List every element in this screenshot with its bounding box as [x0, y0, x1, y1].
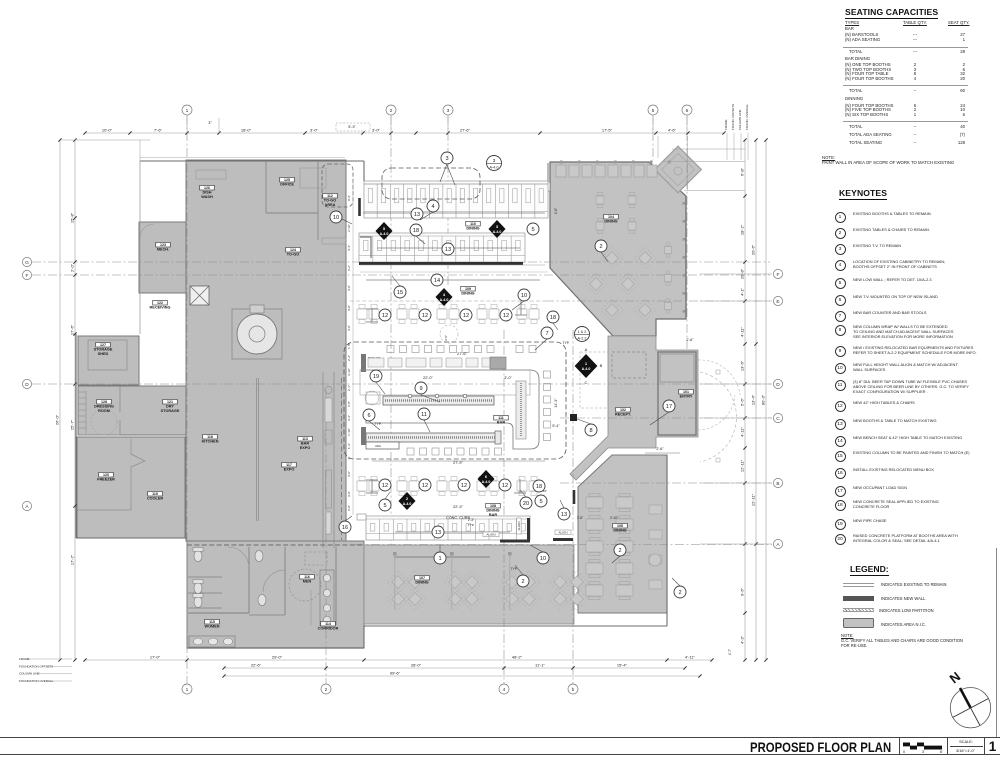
- svg-text:20: 20: [523, 501, 529, 507]
- svg-text:11: 11: [421, 412, 427, 418]
- svg-text:DINING: DINING: [613, 529, 626, 533]
- svg-text:2: 2: [678, 590, 681, 596]
- svg-text:13: 13: [445, 247, 451, 253]
- svg-text:5: 5: [531, 227, 534, 233]
- svg-text:DINING: DINING: [604, 220, 617, 224]
- svg-text:9: 9: [419, 386, 422, 392]
- svg-text:113: 113: [302, 437, 308, 441]
- svg-text:2: 2: [325, 687, 328, 693]
- svg-text:EXPO: EXPO: [300, 446, 311, 450]
- svg-text:19: 19: [373, 374, 379, 380]
- svg-text:7'-6": 7'-6": [154, 127, 163, 132]
- svg-text:4'-6": 4'-6": [554, 208, 558, 214]
- svg-text:111: 111: [498, 416, 504, 420]
- svg-text:17'-0": 17'-0": [150, 654, 161, 659]
- svg-text:10": 10": [543, 489, 547, 493]
- svg-text:4'-0": 4'-0": [347, 305, 351, 311]
- svg-text:FOUND. OVERALL: FOUND. OVERALL: [745, 103, 749, 130]
- svg-text:3'-0": 3'-0": [444, 335, 448, 341]
- svg-text:13: 13: [435, 530, 441, 536]
- svg-text:48'-2": 48'-2": [512, 654, 523, 659]
- svg-text:4: 4: [431, 204, 434, 210]
- svg-text:FRAME: FRAME: [724, 120, 728, 131]
- svg-text:2: 2: [521, 579, 524, 585]
- svg-text:C: C: [776, 416, 780, 422]
- svg-text:26'-0": 26'-0": [54, 414, 59, 425]
- svg-text:12'-11": 12'-11": [750, 493, 755, 506]
- svg-text:12: 12: [463, 313, 469, 319]
- svg-text:10'-0": 10'-0": [102, 127, 113, 132]
- svg-text:TO-GO: TO-GO: [287, 253, 299, 257]
- svg-text:A-4.0: A-4.0: [380, 232, 389, 236]
- svg-text:118: 118: [207, 435, 213, 439]
- svg-text:1'-5": 1'-5": [347, 343, 351, 349]
- svg-text:105: 105: [617, 524, 623, 528]
- svg-text:2'-10": 2'-10": [610, 516, 618, 520]
- svg-text:EXPO: EXPO: [284, 468, 295, 472]
- svg-text:13: 13: [561, 512, 567, 518]
- svg-text:TO-GO: TO-GO: [324, 199, 336, 203]
- svg-text:3'-0": 3'-0": [347, 325, 351, 331]
- svg-text:STORAGE: STORAGE: [161, 409, 180, 413]
- svg-text:17: 17: [666, 404, 672, 410]
- svg-text:126: 126: [204, 186, 210, 190]
- svg-text:114: 114: [325, 622, 331, 626]
- svg-text:13: 13: [414, 212, 420, 218]
- svg-text:2: 2: [618, 548, 621, 554]
- svg-text:5'-3": 5'-3": [348, 125, 356, 129]
- svg-text:2: 2: [599, 244, 602, 250]
- svg-text:5: 5: [383, 503, 386, 509]
- svg-text:DINING: DINING: [486, 509, 499, 513]
- svg-text:13'-4": 13'-4": [750, 394, 755, 405]
- svg-text:122: 122: [157, 301, 163, 305]
- svg-text:123: 123: [160, 243, 166, 247]
- svg-text:4'-1": 4'-1": [739, 287, 744, 296]
- svg-text:22'-6": 22'-6": [251, 662, 262, 667]
- svg-text:15: 15: [397, 290, 403, 296]
- svg-text:80'-3": 80'-3": [760, 394, 765, 405]
- svg-text:2: 2: [390, 108, 393, 114]
- svg-text:7: 7: [545, 331, 548, 337]
- svg-text:116: 116: [304, 575, 310, 579]
- svg-text:ADA: ADA: [375, 444, 381, 448]
- svg-text:18: 18: [550, 315, 556, 321]
- svg-text:DISH: DISH: [202, 191, 211, 195]
- svg-text:D: D: [25, 382, 29, 388]
- svg-text:101: 101: [683, 390, 689, 394]
- svg-text:2'-4": 2'-4": [347, 355, 351, 361]
- svg-text:BAR: BAR: [489, 513, 497, 517]
- svg-text:BAR: BAR: [301, 442, 309, 446]
- svg-text:5: 5: [652, 108, 655, 114]
- svg-text:B: B: [776, 481, 779, 487]
- svg-text:10: 10: [333, 215, 339, 221]
- svg-text:4'-11": 4'-11": [685, 654, 695, 659]
- svg-text:WASH: WASH: [201, 195, 213, 199]
- svg-text:4: 4: [503, 687, 506, 693]
- svg-text:12: 12: [422, 313, 428, 319]
- svg-text:ALIGN: ALIGN: [558, 531, 567, 535]
- svg-text:CORRIDOR: CORRIDOR: [318, 627, 339, 631]
- svg-text:B: B: [600, 363, 603, 368]
- svg-text:18: 18: [413, 228, 419, 234]
- svg-text:117: 117: [286, 463, 292, 467]
- svg-text:4'-7": 4'-7": [728, 649, 732, 655]
- svg-text:2'-6": 2'-6": [656, 447, 664, 451]
- svg-text:9'-6": 9'-6": [739, 587, 744, 596]
- svg-text:108: 108: [490, 504, 496, 508]
- svg-text:16: 16: [342, 525, 348, 531]
- svg-text:OFFICE: OFFICE: [280, 183, 294, 187]
- svg-text:2'-10": 2'-10": [347, 224, 351, 232]
- svg-text:E: E: [776, 299, 779, 305]
- svg-text:3'-2": 3'-2": [347, 265, 351, 271]
- svg-text:COLUMN LINE: COLUMN LINE: [738, 109, 742, 130]
- svg-text:G: G: [25, 260, 29, 266]
- svg-text:TYP.: TYP.: [468, 523, 474, 527]
- svg-text:3': 3': [922, 750, 925, 754]
- svg-text:3'-6": 3'-6": [577, 516, 583, 520]
- svg-text:DRESSING: DRESSING: [94, 405, 114, 409]
- svg-text:9'-6": 9'-6": [347, 195, 351, 201]
- svg-text:A-4.0: A-4.0: [482, 480, 491, 484]
- svg-text:20'-6": 20'-6": [750, 244, 755, 255]
- svg-text:112: 112: [327, 194, 333, 198]
- svg-text:102: 102: [620, 408, 626, 412]
- svg-text:3'-0": 3'-0": [347, 285, 351, 291]
- svg-text:5: 5: [539, 499, 542, 505]
- svg-text:27'-6": 27'-6": [457, 352, 467, 356]
- svg-text:1 & 2: 1 & 2: [578, 330, 586, 334]
- svg-text:F: F: [26, 273, 29, 279]
- svg-text:3'-10": 3'-10": [347, 368, 351, 376]
- svg-text:29'-0": 29'-0": [272, 654, 283, 659]
- svg-text:BAR: BAR: [497, 421, 505, 425]
- svg-text:F: F: [777, 272, 780, 278]
- svg-text:110: 110: [470, 222, 476, 226]
- svg-text:8: 8: [589, 428, 592, 434]
- svg-text:0: 0: [903, 750, 905, 754]
- svg-text:121: 121: [167, 400, 173, 404]
- svg-text:STORAGE: STORAGE: [94, 348, 113, 352]
- svg-text:28'-0": 28'-0": [411, 662, 422, 667]
- svg-text:14: 14: [434, 278, 440, 284]
- svg-text:3: 3: [493, 158, 496, 163]
- svg-text:TYP.: TYP.: [563, 341, 570, 345]
- svg-text:25'-7": 25'-7": [69, 419, 74, 430]
- svg-text:12: 12: [503, 313, 509, 319]
- svg-text:FREEZER: FREEZER: [97, 478, 115, 482]
- svg-text:14'-3": 14'-3": [554, 398, 558, 408]
- svg-text:99'-6": 99'-6": [390, 670, 401, 675]
- svg-text:4'-0": 4'-0": [347, 471, 351, 477]
- svg-text:5'-6": 5'-6": [739, 397, 744, 406]
- svg-text:4'-11": 4'-11": [739, 426, 744, 436]
- svg-text:109: 109: [465, 287, 471, 291]
- svg-text:A-4.0: A-4.0: [403, 502, 412, 506]
- svg-text:DINING: DINING: [466, 227, 479, 231]
- svg-text:12: 12: [502, 483, 508, 489]
- svg-text:10: 10: [521, 293, 527, 299]
- svg-text:3'-4": 3'-4": [347, 415, 351, 421]
- svg-text:3: 3: [445, 156, 448, 162]
- svg-text:1'-10": 1'-10": [347, 428, 351, 436]
- svg-text:3": 3": [208, 121, 212, 125]
- svg-text:A-4.0: A-4.0: [582, 367, 591, 371]
- svg-text:2'-3": 2'-3": [468, 518, 474, 522]
- svg-text:120: 120: [103, 473, 109, 477]
- svg-text:11'-1": 11'-1": [535, 662, 545, 667]
- svg-text:A-4.0: A-4.0: [489, 166, 498, 170]
- svg-text:b: b: [572, 687, 575, 693]
- svg-text:MEN: MEN: [303, 580, 312, 584]
- svg-text:MECH.: MECH.: [157, 248, 169, 252]
- svg-text:125: 125: [284, 178, 290, 182]
- svg-text:22'-0": 22'-0": [423, 376, 433, 380]
- svg-text:D: D: [776, 382, 780, 388]
- svg-text:127: 127: [100, 343, 106, 347]
- svg-text:2'-6": 2'-6": [686, 338, 694, 342]
- svg-text:3'-0": 3'-0": [347, 491, 351, 497]
- svg-text:18'-0": 18'-0": [241, 127, 252, 132]
- svg-text:3'-0": 3'-0": [504, 376, 512, 380]
- svg-text:A-4.0: A-4.0: [493, 230, 502, 234]
- svg-text:FOUND. OFFSETS: FOUND. OFFSETS: [731, 104, 735, 130]
- svg-text:12: 12: [461, 483, 467, 489]
- svg-text:6": 6": [347, 457, 351, 460]
- svg-text:20'-8": 20'-8": [739, 268, 744, 279]
- svg-text:107: 107: [419, 576, 425, 580]
- svg-text:10: 10: [540, 556, 546, 562]
- svg-text:TYP.: TYP.: [511, 567, 518, 571]
- svg-text:RECEIVING: RECEIVING: [150, 306, 171, 310]
- svg-text:KITCHEN: KITCHEN: [202, 440, 219, 444]
- svg-text:17'-2": 17'-2": [69, 554, 74, 565]
- svg-text:ALIGN: ALIGN: [517, 521, 521, 530]
- svg-text:6: 6: [367, 413, 370, 419]
- svg-text:104: 104: [608, 215, 614, 219]
- svg-text:A: A: [585, 347, 588, 352]
- svg-text:6'-8": 6'-8": [739, 167, 744, 176]
- svg-text:15'-4": 15'-4": [617, 662, 628, 667]
- svg-text:4'-4": 4'-4": [347, 245, 351, 251]
- svg-text:2'-1": 2'-1": [347, 385, 351, 391]
- svg-text:128: 128: [101, 400, 107, 404]
- svg-text:119: 119: [152, 492, 158, 496]
- svg-text:SHED: SHED: [98, 352, 109, 356]
- svg-text:RECEPT.: RECEPT.: [615, 413, 631, 417]
- svg-text:6: 6: [686, 108, 689, 114]
- svg-text:A-2.2: A-2.2: [577, 337, 586, 341]
- svg-text:13'-6": 13'-6": [739, 360, 744, 371]
- svg-text:18: 18: [536, 484, 542, 490]
- svg-text:17'-5": 17'-5": [602, 127, 613, 132]
- svg-text:3: 3: [455, 143, 456, 144]
- svg-text:AREA: AREA: [325, 203, 336, 207]
- svg-text:3'-0": 3'-0": [372, 127, 381, 132]
- svg-text:12: 12: [382, 313, 388, 319]
- svg-text:2'-0": 2'-0": [69, 263, 74, 272]
- svg-text:CONC. CURB: CONC. CURB: [446, 516, 471, 520]
- svg-text:12: 12: [422, 483, 428, 489]
- svg-text:C: C: [585, 380, 588, 385]
- svg-text:WOMEN: WOMEN: [205, 625, 220, 629]
- svg-text:DRY: DRY: [166, 405, 174, 409]
- svg-text:5'-4": 5'-4": [552, 424, 560, 428]
- svg-text:ROOM: ROOM: [98, 409, 110, 413]
- svg-text:124: 124: [290, 248, 296, 252]
- svg-text:1'-3": 1'-3": [347, 443, 351, 449]
- svg-text:COOLER: COOLER: [147, 497, 164, 501]
- svg-text:1: 1: [186, 687, 189, 693]
- svg-text:17'-6": 17'-6": [69, 324, 74, 335]
- svg-text:4'-6": 4'-6": [668, 127, 677, 132]
- svg-text:3'-0": 3'-0": [347, 505, 351, 511]
- svg-text:115: 115: [209, 620, 215, 624]
- svg-text:1: 1: [186, 108, 189, 114]
- svg-text:27'-9": 27'-9": [453, 461, 463, 465]
- svg-text:A-4.0: A-4.0: [440, 298, 449, 302]
- svg-text:3: 3: [447, 108, 450, 114]
- svg-text:15'-8": 15'-8": [69, 212, 74, 223]
- svg-text:N: N: [947, 669, 964, 687]
- svg-text:4'-11": 4'-11": [739, 326, 744, 336]
- svg-text:DINING: DINING: [415, 581, 428, 585]
- svg-text:12'-11": 12'-11": [739, 459, 744, 472]
- svg-text:27'-6": 27'-6": [460, 127, 471, 132]
- svg-text:18'-2": 18'-2": [739, 224, 744, 235]
- svg-text:DINING: DINING: [461, 292, 474, 296]
- svg-text:22'-3": 22'-3": [453, 505, 463, 509]
- svg-text:4'-3": 4'-3": [739, 635, 744, 644]
- svg-text:ENTRY: ENTRY: [680, 395, 693, 399]
- svg-text:6': 6': [940, 750, 943, 754]
- svg-text:ALIGN: ALIGN: [486, 533, 495, 537]
- svg-text:3'-8": 3'-8": [347, 401, 351, 407]
- svg-text:1: 1: [438, 556, 441, 562]
- svg-text:3'-0": 3'-0": [310, 127, 319, 132]
- svg-text:12: 12: [382, 483, 388, 489]
- svg-text:TYP.: TYP.: [374, 422, 381, 426]
